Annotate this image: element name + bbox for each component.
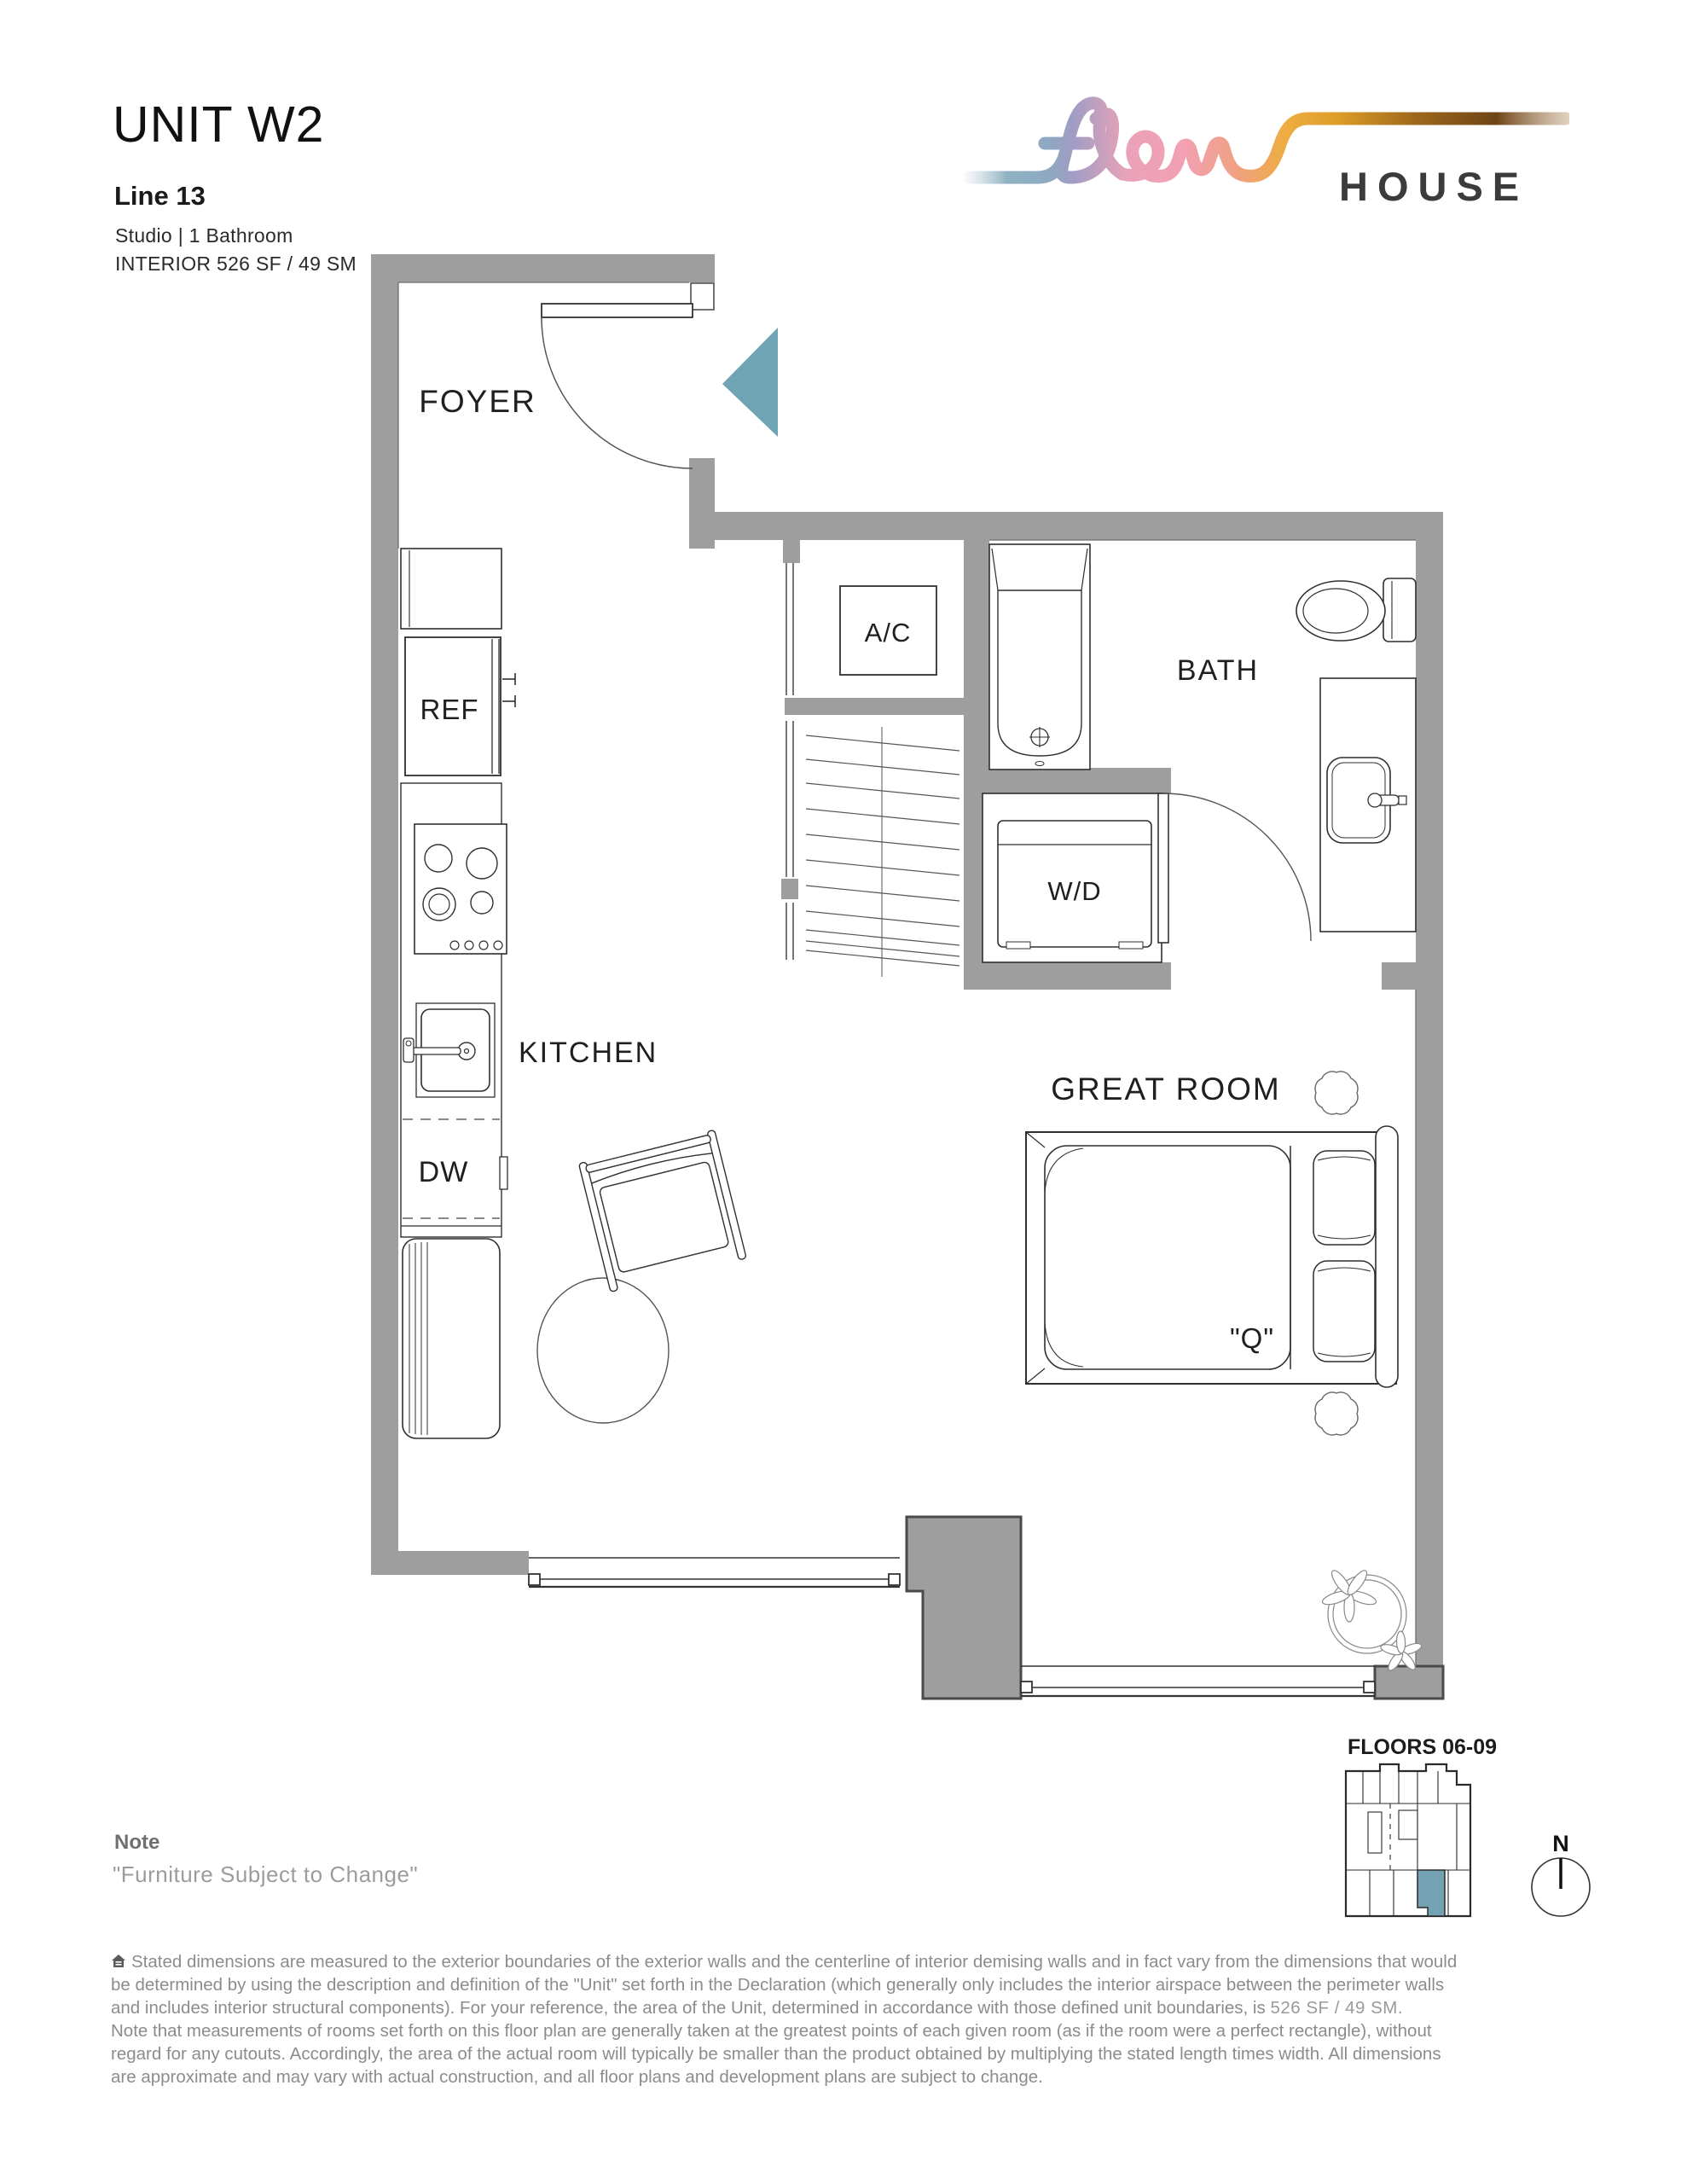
keyplan: FLOORS 06-09 N: [1339, 1725, 1603, 1938]
ac-label: A/C: [865, 618, 912, 648]
disclaimer-line: regard for any cutouts. Accordingly, the…: [111, 2042, 1586, 2065]
floorplan-page: UNIT W2 Line 13 Studio | 1 Bathroom INTE…: [0, 0, 1687, 2184]
wall-facelines: [398, 282, 1416, 1666]
window-living: [529, 1558, 900, 1587]
entry-door-swing: [542, 317, 693, 468]
disclaimer-text: Stated dimensions are measured to the ex…: [131, 1952, 1457, 1972]
kitchen-label: KITCHEN: [519, 1037, 658, 1069]
flow-house-logo: HOUSE: [964, 82, 1569, 235]
floorplan-drawing: FOYER A/C BATH REF W/D KITCHEN DW GREAT …: [341, 239, 1467, 1740]
flow-script-icon: HOUSE: [964, 82, 1569, 235]
queen-bed-label: "Q": [1230, 1322, 1274, 1354]
corner-column: [1375, 1666, 1443, 1699]
north-arrow-icon: N: [1532, 1831, 1590, 1916]
dw-label: DW: [419, 1156, 469, 1188]
toilet: [1296, 578, 1416, 642]
great-room-label: GREAT ROOM: [1051, 1072, 1280, 1107]
disclaimer-line: be determined by using the description a…: [111, 1973, 1586, 1996]
sofa: [403, 1239, 500, 1438]
ref-label: REF: [420, 694, 479, 725]
bathtub: [989, 544, 1090, 770]
logo-house-label: HOUSE: [1339, 164, 1528, 209]
round-table: [537, 1278, 669, 1423]
vanity: [1320, 678, 1416, 932]
entry-marker-icon: [722, 328, 778, 437]
palm-plant-icon: [1316, 1559, 1429, 1680]
wd-label: W/D: [1047, 876, 1101, 906]
cooktop: [415, 824, 507, 954]
entry-jamb: [691, 283, 714, 310]
bed: [1026, 1126, 1398, 1387]
north-label: N: [1552, 1831, 1569, 1856]
area-value: 526 SF / 49 SM.: [1270, 1998, 1403, 2018]
pillow: [1313, 1261, 1375, 1362]
window-greatroom: [1021, 1666, 1375, 1696]
closet-doors: [786, 563, 793, 960]
foyer-label: FOYER: [419, 384, 536, 419]
floors-label: FLOORS 06-09: [1348, 1735, 1497, 1759]
kitchen-casework: [401, 549, 515, 1237]
headboard: [1376, 1126, 1398, 1387]
walls: [371, 254, 1443, 1668]
bath-label: BATH: [1177, 654, 1259, 687]
closet-hanger-lines: [806, 727, 959, 977]
bath-door-swing: [1163, 793, 1311, 941]
keyplan-building: [1346, 1764, 1470, 1916]
line-subtitle: Line 13: [114, 181, 206, 212]
disclaimer-line: are approximate and may vary with actual…: [111, 2065, 1586, 2088]
chair: [579, 1130, 747, 1292]
entry-door-leaf: [542, 304, 693, 317]
equal-housing-icon: [111, 1954, 126, 1969]
unit-config: Studio | 1 Bathroom: [115, 224, 293, 247]
note-title: Note: [114, 1831, 159, 1855]
page-title: UNIT W2: [113, 96, 324, 154]
disclaimer-line: Note that measurements of rooms set fort…: [111, 2019, 1586, 2042]
faucet-icon: [411, 1048, 461, 1054]
pillow: [1313, 1151, 1375, 1245]
dw-handle: [500, 1157, 507, 1189]
disclaimer-line: Stated dimensions are measured to the ex…: [111, 1950, 1586, 1973]
unit-area: INTERIOR 526 SF / 49 SM: [115, 253, 357, 276]
disclaimer: Stated dimensions are measured to the ex…: [111, 1950, 1586, 2088]
disclaimer-line: and includes interior structural compone…: [111, 1996, 1586, 2019]
structural-column: [907, 1517, 1021, 1699]
bath-door-leaf: [1158, 793, 1168, 943]
note-body: "Furniture Subject to Change": [113, 1862, 418, 1888]
